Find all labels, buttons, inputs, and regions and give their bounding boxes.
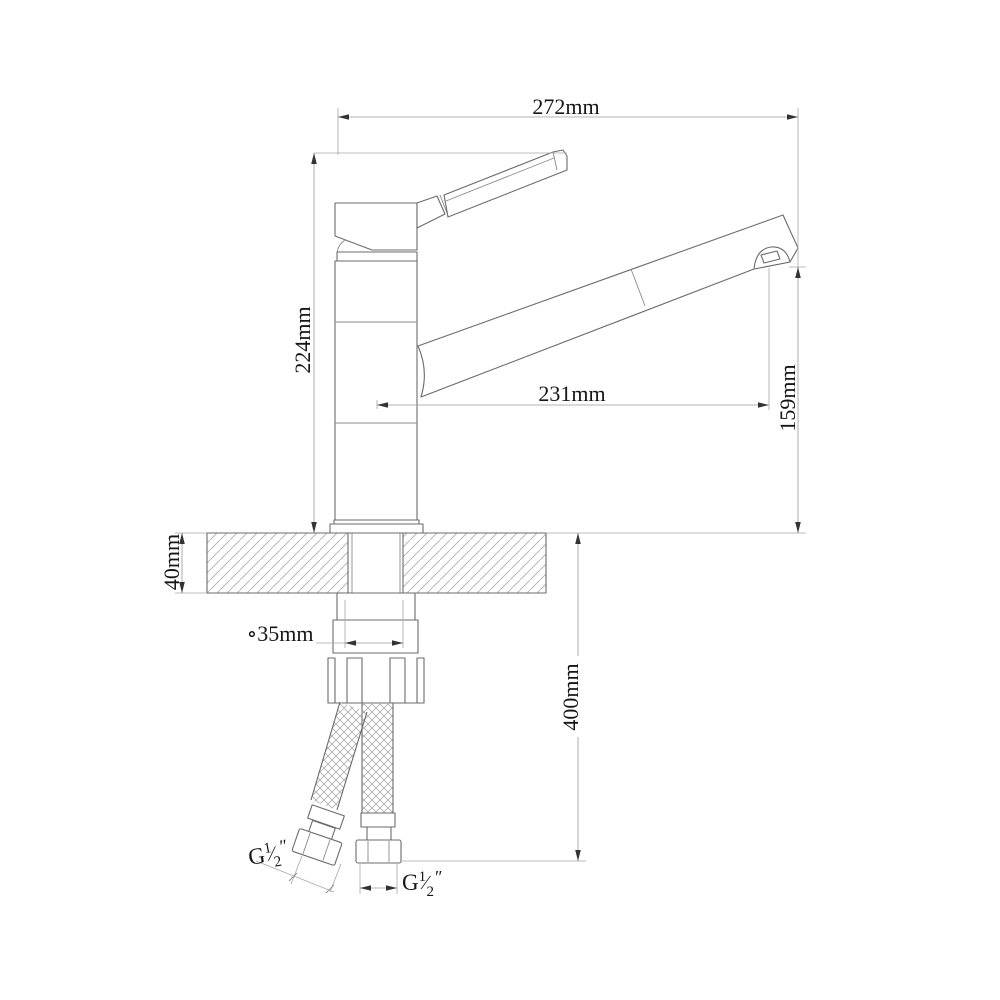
dim-spout-reach-label: 231mm (538, 381, 605, 406)
mounting-hole-edges (348, 533, 403, 593)
hex-nut (356, 840, 401, 863)
dimension-annotations: 272mm 224mm 231mm 159mm 40mm (159, 94, 806, 900)
braided-hose-angled (311, 702, 367, 810)
dim-body-height-label: 224mm (290, 306, 315, 373)
hex-nut (292, 828, 342, 865)
hose-neck (367, 827, 391, 840)
castellated-mounting-nut (328, 658, 424, 703)
dim-overall-width-label: 272mm (532, 94, 599, 119)
spout (418, 215, 798, 397)
thread-label-left: G1∕2″ (246, 835, 292, 875)
countertop (207, 533, 546, 593)
body-column (335, 261, 417, 520)
dim-counter-thickness-label: 40mm (159, 534, 184, 590)
faucet-dimension-drawing: 272mm 224mm 231mm 159mm 40mm (0, 0, 1000, 1000)
braided-hose-vertical (362, 703, 393, 813)
dim-spout-height-label: 159mm (775, 364, 800, 431)
mounting-hardware (328, 593, 424, 703)
faucet-outline (207, 150, 798, 866)
hose-ferrule (361, 813, 395, 827)
dim-hose-length-label: 400mm (558, 663, 583, 730)
handle-lever (335, 150, 567, 259)
dim-counter-thickness: 40mm (159, 533, 207, 593)
body-collar (337, 252, 417, 261)
shank-in-hole (352, 533, 400, 593)
faucet-body (330, 252, 423, 533)
base-flange (330, 524, 423, 533)
shank-lower-section (333, 620, 418, 653)
mixer-head (335, 203, 417, 250)
thread-label-right: G1∕2″ (402, 867, 442, 900)
dim-hole-diameter-label: ∘35mm (246, 621, 313, 646)
base-plate (334, 520, 419, 524)
lever-neck (417, 196, 445, 228)
dim-thread-right: G1∕2″ (360, 864, 442, 900)
technical-drawing-canvas: 272mm 224mm 231mm 159mm 40mm (0, 0, 1000, 1000)
